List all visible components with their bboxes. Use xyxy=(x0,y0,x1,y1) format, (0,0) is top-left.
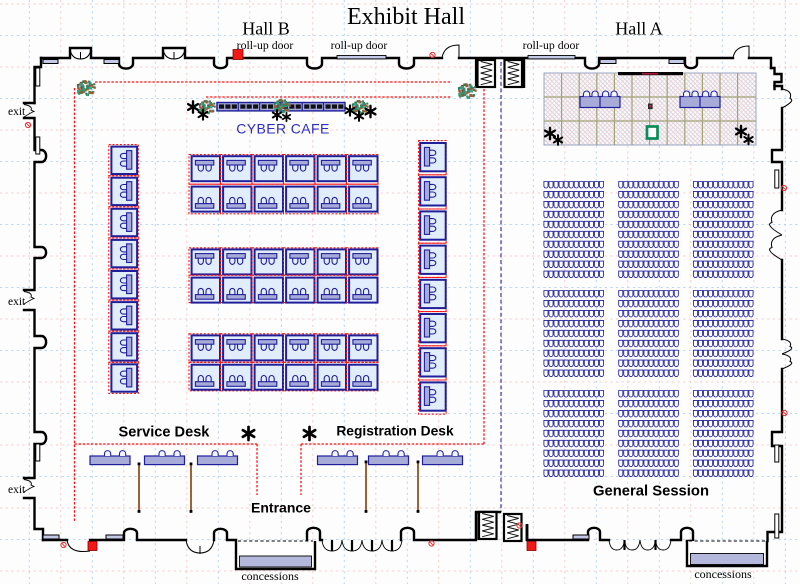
svg-text:Entrance: Entrance xyxy=(251,500,311,516)
svg-text:Hall A: Hall A xyxy=(615,19,663,39)
svg-text:exit: exit xyxy=(8,484,26,496)
svg-text:exit: exit xyxy=(8,106,26,118)
svg-text:concessions: concessions xyxy=(694,567,752,581)
svg-text:General Session: General Session xyxy=(593,484,709,500)
svg-text:roll-up door: roll-up door xyxy=(237,38,294,52)
svg-text:Registration Desk: Registration Desk xyxy=(336,424,454,439)
svg-text:concessions: concessions xyxy=(241,569,299,583)
svg-text:roll-up door: roll-up door xyxy=(523,38,580,52)
svg-text:roll-up door: roll-up door xyxy=(331,38,388,52)
svg-text:Hall B: Hall B xyxy=(242,19,290,39)
svg-text:Exhibit Hall: Exhibit Hall xyxy=(347,4,465,30)
svg-text:CYBER CAFE: CYBER CAFE xyxy=(236,121,329,137)
svg-text:exit: exit xyxy=(8,296,26,308)
svg-text:Service Desk: Service Desk xyxy=(119,425,211,441)
